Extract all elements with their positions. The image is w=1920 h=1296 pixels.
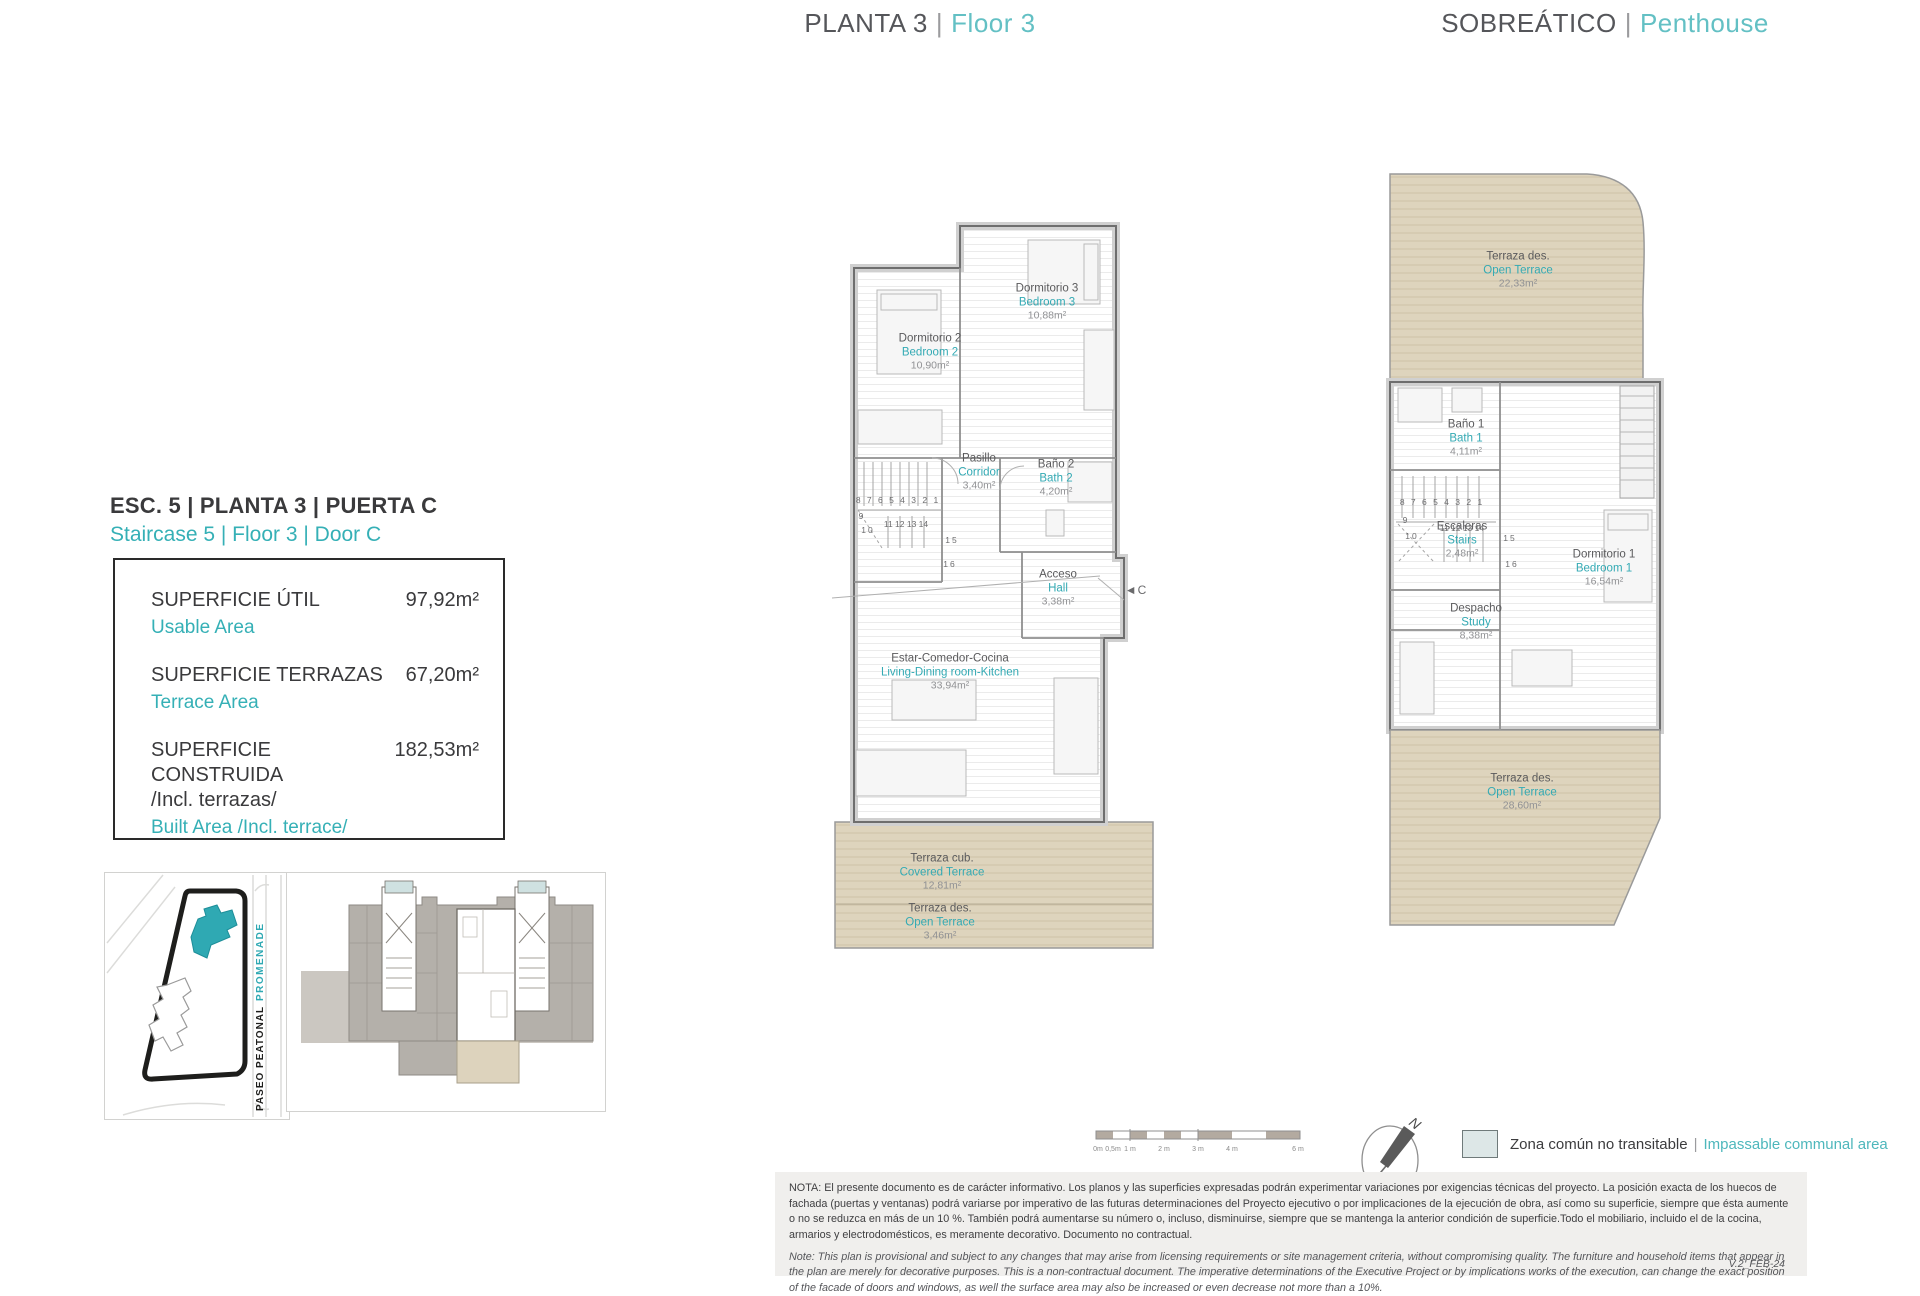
- room-label-corridor: Pasillo Corridor 3,40m²: [958, 452, 1000, 492]
- unit-heading-en: Staircase 5 | Floor 3 | Door C: [110, 521, 437, 548]
- floor3-stair-numbers-top: 8 7 6 5 4 3 2 1: [856, 495, 940, 505]
- room-label-hall: Acceso Hall 3,38m²: [1039, 568, 1077, 608]
- floor-title-es: PLANTA 3: [804, 8, 927, 38]
- legend-label-es: Zona común no transitable: [1510, 1136, 1688, 1153]
- note-spanish: NOTA: El presente documento es de caráct…: [789, 1181, 1791, 1244]
- site-plan-thumbnail: PROMENADE PASEO PEATONAL: [104, 872, 290, 1120]
- room-label-open-terrace: Terraza des. Open Terrace 3,46m²: [905, 902, 974, 942]
- site-highlighted-building: [191, 905, 237, 958]
- penthouse-title-es: SOBREÁTICO: [1441, 8, 1616, 38]
- unit-heading: ESC. 5 | PLANTA 3 | PUERTA C Staircase 5…: [110, 492, 437, 548]
- penthouse-stair-numbers-top: 8 7 6 5 4 3 2 1: [1400, 497, 1484, 507]
- unit-heading-es: ESC. 5 | PLANTA 3 | PUERTA C: [110, 492, 437, 521]
- svg-text:0m: 0m: [1093, 1146, 1103, 1153]
- street-label-promenade: PROMENADE: [255, 922, 266, 1001]
- usable-area-label-es: SUPERFICIE ÚTIL: [151, 588, 320, 613]
- penthouse-plan: Terraza des. Open Terrace 22,33m² Baño 1…: [1382, 170, 1677, 935]
- floor-title-separator: |: [936, 8, 943, 38]
- penthouse-stair-number-9: 9: [1403, 515, 1410, 525]
- penthouse-stair-number-15: 15: [1503, 533, 1516, 543]
- room-label-terrace-bottom: Terraza des. Open Terrace 28,60m²: [1487, 772, 1556, 812]
- floor3-terrace-area: [835, 822, 1153, 948]
- areas-box: SUPERFICIE ÚTIL Usable Area 97,92m² SUPE…: [113, 558, 505, 840]
- key-plan-drawing: [287, 873, 605, 1111]
- room-label-living: Estar-Comedor-Cocina Living-Dining room-…: [881, 652, 1019, 692]
- built-area-value: 182,53m²: [395, 738, 480, 762]
- legend-swatch-impassable: [1462, 1130, 1498, 1158]
- penthouse-title: SOBREÁTICO|Penthouse: [1440, 8, 1770, 39]
- penthouse-stair-number-16: 16: [1505, 559, 1518, 569]
- notes-panel: NOTA: El presente documento es de caráct…: [775, 1172, 1807, 1276]
- penthouse-stair-number-10: 10: [1405, 531, 1418, 541]
- floor3-stair-number-16: 16: [943, 559, 956, 569]
- usable-area-label-en: Usable Area: [151, 616, 320, 640]
- floor-title: PLANTA 3|Floor 3: [720, 8, 1120, 39]
- key-plan-bottom-terrace: [457, 1041, 519, 1083]
- scale-bar-segments: [1096, 1129, 1300, 1141]
- room-label-covered-terrace: Terraza cub. Covered Terrace 12,81m²: [900, 852, 985, 892]
- room-label-bath2: Baño 2 Bath 2 4,20m²: [1038, 458, 1074, 498]
- floor-title-en: Floor 3: [951, 8, 1035, 38]
- scale-bar-drawing: 0m 0,5m 1 m 2 m 3 m 4 m 6 m: [1090, 1128, 1340, 1158]
- room-label-terrace-top: Terraza des. Open Terrace 22,33m²: [1483, 250, 1552, 290]
- svg-text:1 m: 1 m: [1124, 1146, 1136, 1153]
- legend-label-en: Impassable communal area: [1704, 1136, 1888, 1153]
- penthouse-title-separator: |: [1625, 8, 1632, 38]
- area-row-built: SUPERFICIE CONSTRUIDA /Incl. terrazas/ B…: [151, 738, 479, 840]
- site-plan-drawing: PROMENADE PASEO PEATONAL: [105, 873, 289, 1119]
- penthouse-bottom-terrace: [1390, 730, 1660, 925]
- penthouse-title-en: Penthouse: [1640, 8, 1769, 38]
- floor3-stair-numbers-mid: 11 12 13 14: [884, 519, 928, 529]
- svg-text:6 m: 6 m: [1292, 1146, 1304, 1153]
- room-label-study: Despacho Study 8,38m²: [1450, 602, 1502, 642]
- terrace-area-label-es: SUPERFICIE TERRAZAS: [151, 663, 383, 688]
- room-label-bedroom3: Dormitorio 3 Bedroom 3 10,88m²: [1016, 282, 1079, 322]
- floor3-stair-number-15: 15: [945, 535, 958, 545]
- access-marker: ◄C: [1125, 583, 1148, 597]
- svg-text:2 m: 2 m: [1158, 1146, 1170, 1153]
- scale-bar-labels: 0m 0,5m 1 m 2 m 3 m 4 m 6 m: [1093, 1146, 1304, 1153]
- legend: Zona común no transitable | Impassable c…: [1462, 1130, 1888, 1158]
- terrace-area-value: 67,20m²: [406, 663, 479, 687]
- penthouse-stair-numbers-mid: 11 12 13 14: [1440, 523, 1484, 533]
- usable-area-value: 97,92m²: [406, 588, 479, 612]
- svg-text:4 m: 4 m: [1226, 1146, 1238, 1153]
- street-label-paseo-peatonal: PASEO PEATONAL: [255, 1006, 266, 1111]
- area-row-usable: SUPERFICIE ÚTIL Usable Area 97,92m²: [151, 588, 479, 640]
- key-plan-bottom-stub-gray: [399, 1041, 457, 1075]
- area-row-terrace: SUPERFICIE TERRAZAS Terrace Area 67,20m²: [151, 663, 479, 715]
- built-area-label-en: Built Area /Incl. terrace/: [151, 816, 395, 840]
- note-english: Note: This plan is provisional and subje…: [789, 1250, 1791, 1296]
- room-label-bath1: Baño 1 Bath 1 4,11m²: [1448, 418, 1484, 458]
- key-plan-highlighted-unit: [457, 909, 515, 1041]
- svg-text:0,5m: 0,5m: [1105, 1146, 1121, 1153]
- built-area-label-es: SUPERFICIE CONSTRUIDA: [151, 738, 395, 788]
- terrace-area-label-en: Terrace Area: [151, 691, 383, 715]
- floor3-plan-drawing: [832, 210, 1164, 955]
- svg-text:3 m: 3 m: [1192, 1146, 1204, 1153]
- key-plan-thumbnail: [286, 872, 606, 1112]
- legend-separator: |: [1694, 1136, 1698, 1153]
- key-plan-core-right: [515, 881, 549, 1011]
- plan-version: V.2_FEB-24: [1729, 1258, 1785, 1270]
- penthouse-closet: [1620, 386, 1654, 498]
- room-label-bedroom1: Dormitorio 1 Bedroom 1 16,54m²: [1573, 548, 1636, 588]
- key-plan-core-left: [382, 881, 416, 1011]
- floor3-plan: Dormitorio 2 Bedroom 2 10,90m² Dormitori…: [832, 210, 1164, 955]
- scale-bar: 0m 0,5m 1 m 2 m 3 m 4 m 6 m: [1090, 1128, 1340, 1163]
- room-label-bedroom2: Dormitorio 2 Bedroom 2 10,90m²: [899, 332, 962, 372]
- floor3-stair-number-9: 9: [859, 511, 866, 521]
- floor3-stair-number-10: 10: [861, 525, 874, 535]
- built-area-label-es2: /Incl. terrazas/: [151, 788, 395, 813]
